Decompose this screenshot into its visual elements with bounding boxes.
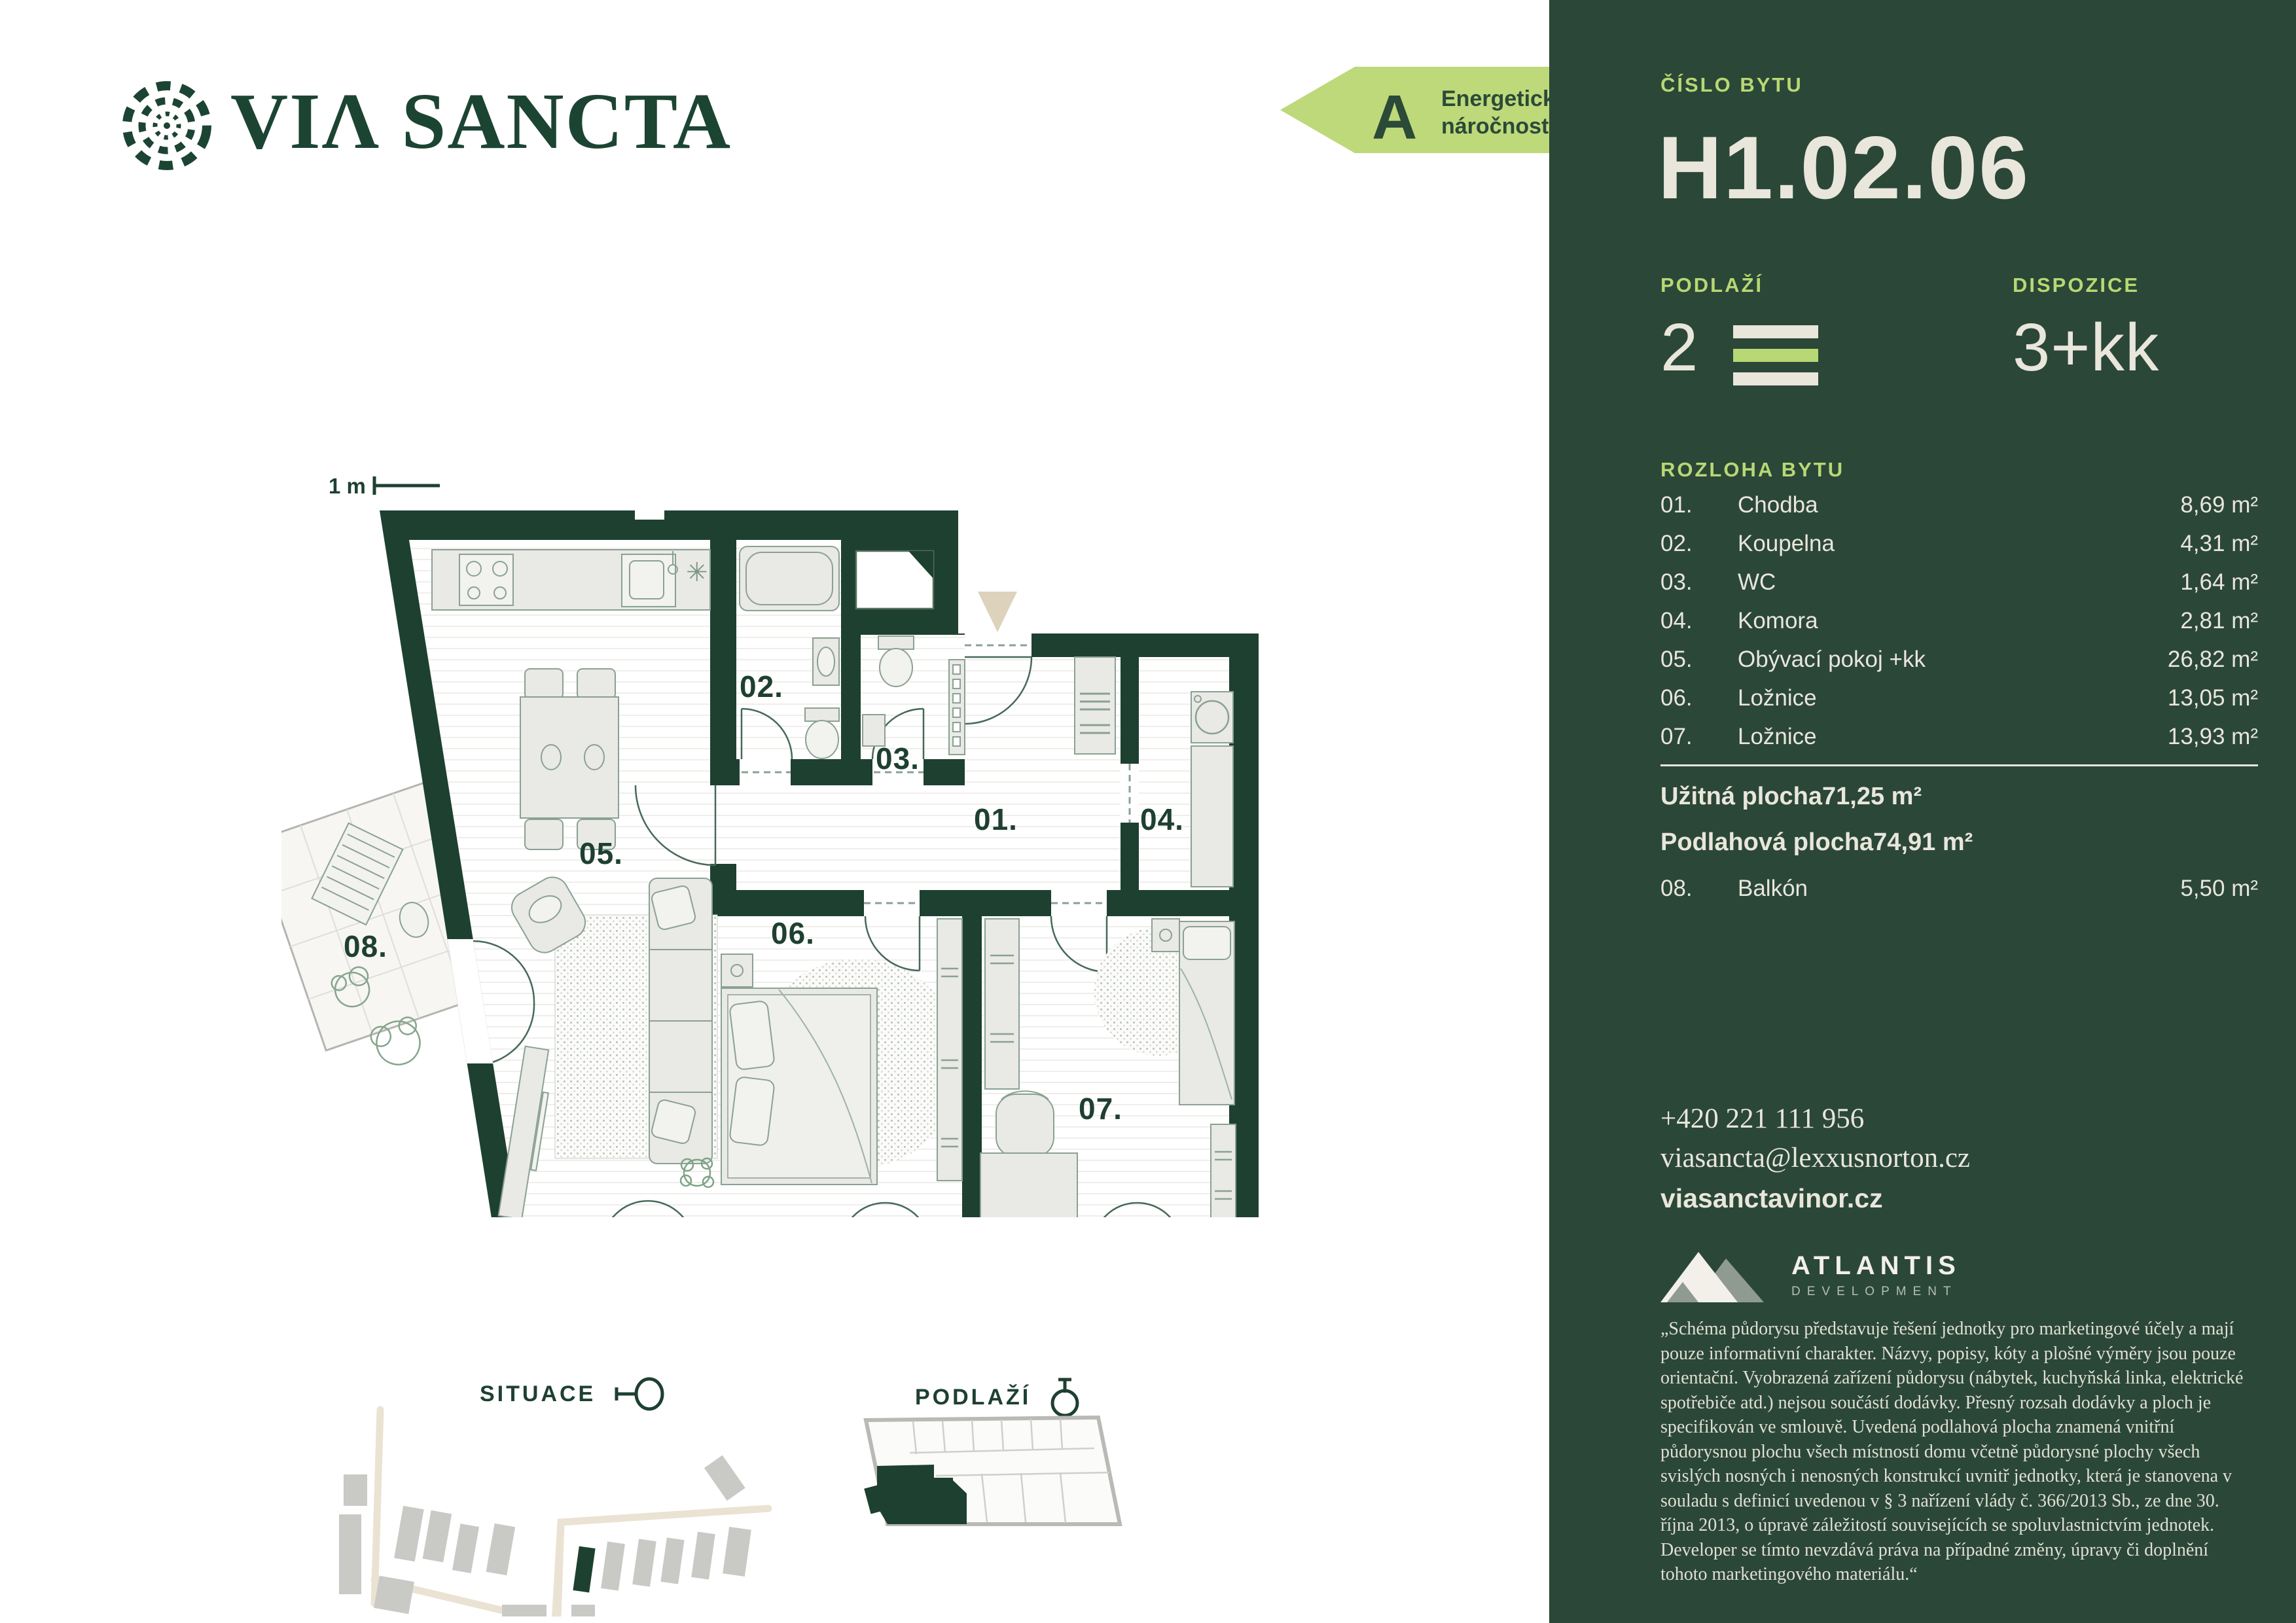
podlazi-header: PODLAŽÍ xyxy=(915,1377,1082,1418)
floor-plan: 1 m xyxy=(281,471,1316,1217)
atlantis-logo-icon xyxy=(1660,1247,1765,1302)
info-panel: ČÍSLO BYTU H1.02.06 PODLAŽÍ 2 DISPOZICE … xyxy=(1549,0,2296,1623)
radiator-symbol: ✳ xyxy=(686,558,708,587)
rooms-heading: ROZLOHA BYTU xyxy=(1660,458,1844,482)
installation-shaft xyxy=(856,551,933,609)
balcony-row: 08.Balkón5,50 m² xyxy=(1660,876,2258,902)
hall-cabinet xyxy=(1075,657,1115,754)
table-row: 07.Ložnice13,93 m² xyxy=(1660,724,2258,750)
room-label-06: 06. xyxy=(771,916,815,950)
via-sancta-logo-icon xyxy=(118,73,219,178)
entrance-marker xyxy=(978,592,1017,632)
energy-line2: náročnost xyxy=(1441,114,1549,139)
table-row: 02.Koupelna4,31 m² xyxy=(1660,531,2258,557)
contact-email: viasancta@lexxusnorton.cz xyxy=(1660,1142,1970,1174)
storage-counter xyxy=(1191,746,1233,887)
contact-website: viasanctavinor.cz xyxy=(1660,1183,1883,1214)
table-row: 05.Obývací pokoj +kk26,82 m² xyxy=(1660,647,2258,673)
room-label-08: 08. xyxy=(344,929,387,963)
unit-number: H1.02.06 xyxy=(1658,116,2030,219)
divider xyxy=(1660,764,2258,766)
wardrobe-07b xyxy=(1211,1124,1236,1217)
layout-label: DISPOZICE xyxy=(2013,274,2140,297)
usable-area-row: Užitná plocha71,25 m² xyxy=(1660,783,2258,811)
atlantis-logo-text: ATLANTIS DEVELOPMENT xyxy=(1791,1251,1961,1299)
brochure-page: VIΛ SANCTA A Energetická náročnost 1 m xyxy=(0,0,2296,1623)
podlazi-label: PODLAŽÍ xyxy=(915,1385,1031,1410)
bathtub xyxy=(740,546,839,611)
floor-label: PODLAŽÍ xyxy=(1660,274,1763,297)
table-row: 04.Komora2,81 m² xyxy=(1660,608,2258,634)
compass-north-icon xyxy=(1048,1377,1082,1418)
washbasin xyxy=(813,638,839,685)
bed-06 xyxy=(721,954,877,1185)
floor-overview-map xyxy=(851,1414,1217,1571)
room-label-05: 05. xyxy=(579,836,623,870)
floor-area-row: Podlahová plocha74,91 m² xyxy=(1660,829,2258,857)
unit-number-label: ČÍSLO BYTU xyxy=(1660,73,1803,97)
toilet-02 xyxy=(805,708,839,758)
energy-line1: Energetická xyxy=(1441,86,1550,111)
kitchen-counter: ✳ xyxy=(432,550,710,610)
floor-indicator-bars xyxy=(1733,325,1818,387)
wardrobe-07 xyxy=(985,919,1019,1089)
floor-number: 2 xyxy=(1660,309,1698,386)
site-map xyxy=(327,1400,785,1616)
table-row: 03.WC1,64 m² xyxy=(1660,569,2258,596)
table-row: 06.Ložnice13,05 m² xyxy=(1660,685,2258,711)
highlighted-building xyxy=(573,1546,595,1593)
room-label-02: 02. xyxy=(740,669,783,704)
room-label-07: 07. xyxy=(1079,1092,1122,1126)
table-row: 01.Chodba8,69 m² xyxy=(1660,492,2258,518)
via-sancta-logo-text: VIΛ SANCTA xyxy=(230,76,732,168)
room-label-01: 01. xyxy=(974,802,1018,836)
energy-class-arrow: A Energetická náročnost xyxy=(1275,64,1550,156)
legal-disclaimer: „Schéma půdorysu představuje řešení jedn… xyxy=(1660,1317,2244,1587)
sofa xyxy=(649,878,712,1164)
wardrobe-06 xyxy=(937,919,962,1181)
scale-bar: 1 m xyxy=(329,474,440,498)
layout-value: 3+kk xyxy=(2013,309,2159,386)
coat-rack xyxy=(949,660,965,755)
developer-name: ATLANTIS xyxy=(1791,1251,1961,1281)
washing-machine xyxy=(1191,692,1233,743)
contact-phone: +420 221 111 956 xyxy=(1660,1103,1864,1135)
energy-grade: A xyxy=(1372,82,1417,152)
developer-subtitle: DEVELOPMENT xyxy=(1791,1285,1961,1299)
room-label-03: 03. xyxy=(876,741,920,776)
svg-text:1 m: 1 m xyxy=(329,474,366,498)
room-label-04: 04. xyxy=(1140,802,1184,836)
